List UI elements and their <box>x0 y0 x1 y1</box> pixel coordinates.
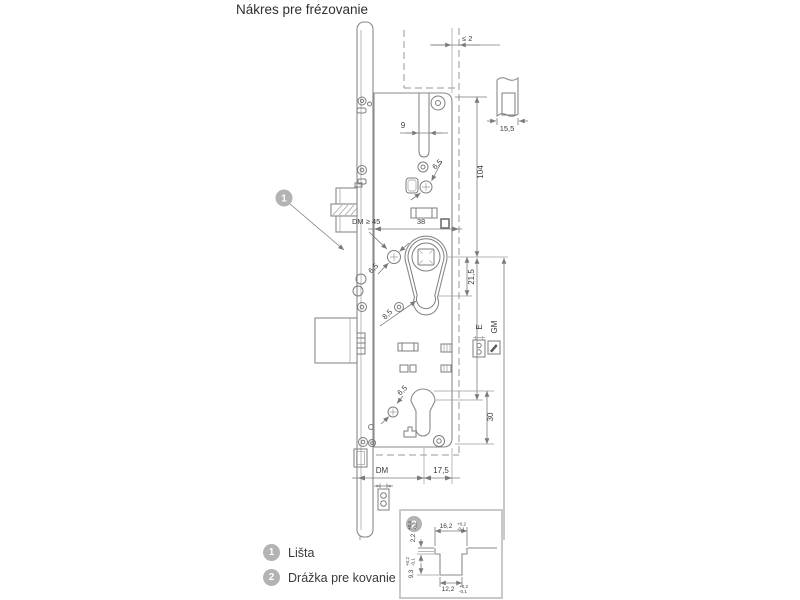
faceplate <box>354 22 373 537</box>
detail-full-depth-tol-minus: -0,1 <box>411 558 416 566</box>
callout-1-number: 1 <box>281 194 287 205</box>
dim-gm: GM <box>488 258 504 540</box>
legend-badge-1: 1 <box>263 544 280 561</box>
legend-badge-2: 2 <box>263 569 280 586</box>
dim-104-label: 104 <box>476 165 485 179</box>
lock-drawing: ≤ 2 15,5 9 6,5 104 DM ≥ 45 <box>0 0 800 600</box>
drawing-page: Nákres pre frézovanie <box>0 0 800 600</box>
detail-bottom-width-tol-minus: -0,1 <box>459 589 467 594</box>
detail-step-depth: 2,2 <box>411 533 417 542</box>
dim-17-5-label: 17,5 <box>433 466 449 475</box>
detail-step-depth-tol-minus: -0,1 <box>413 522 418 530</box>
legend-label-1: Lišta <box>288 546 314 560</box>
detail-top-width-tol-minus: -0,1 <box>457 527 465 532</box>
detail-full-depth: 9,3 <box>409 569 415 578</box>
dim-21-5-label: 21,5 <box>467 269 476 285</box>
dim-dm-label: DM <box>376 466 389 475</box>
plate-section-detail: 15,5 <box>487 78 528 133</box>
groove-detail-box: 2 16,2 +0,2 -0,1 2,2 +0,2 -0,1 <box>400 510 502 598</box>
dim-38-label: 38 <box>417 217 425 226</box>
gm-detail-icon <box>488 341 500 354</box>
detail-bottom-width: 12,2 <box>442 586 455 593</box>
dim-plate-label: 15,5 <box>500 124 515 133</box>
dim-slot-label: 9 <box>401 121 406 130</box>
dim-104: 104 <box>455 97 487 257</box>
dim-dm-min-label: DM ≥ 45 <box>352 217 380 226</box>
e-detail-icon <box>473 336 485 357</box>
fixing-piece <box>374 484 393 511</box>
detail-full-depth-tol-plus: +0,2 <box>405 556 410 566</box>
detail-step-depth-tol-plus: +0,2 <box>407 520 412 530</box>
legend-item-lista: 1 Lišta <box>263 544 396 561</box>
dim-gap-label: ≤ 2 <box>462 34 472 43</box>
dim-gap-max: ≤ 2 <box>430 34 500 45</box>
dim-30-label: 30 <box>486 412 495 421</box>
legend-label-2: Drážka pre kovanie <box>288 571 396 585</box>
legend: 1 Lišta 2 Drážka pre kovanie <box>263 544 396 594</box>
legend-item-drazka: 2 Drážka pre kovanie <box>263 569 396 586</box>
callout-1: 1 <box>276 190 345 251</box>
dim-gm-label: GM <box>490 320 499 333</box>
detail-top-width: 16,2 <box>440 523 453 530</box>
dim-e-label: E <box>475 324 484 329</box>
deadbolt <box>315 318 357 363</box>
